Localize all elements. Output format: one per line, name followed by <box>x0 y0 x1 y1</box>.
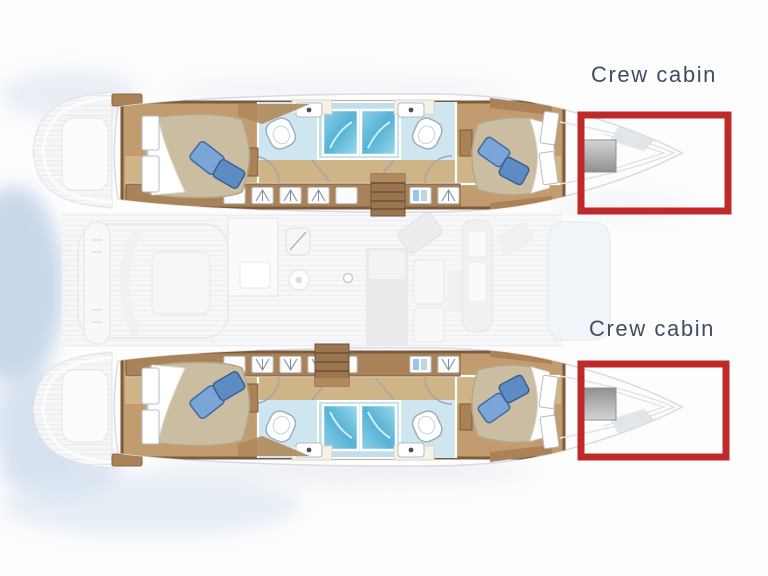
locker-door <box>336 188 357 204</box>
faucet-dot <box>307 108 312 113</box>
nightstand-2 <box>460 130 472 156</box>
galley-sink <box>240 262 270 288</box>
shadow-bow <box>550 195 690 219</box>
crew-cabin-label-bottom: Crew cabin <box>572 316 732 342</box>
hull-top <box>33 92 682 212</box>
shadow-left <box>0 186 64 386</box>
nav-unit-panel <box>468 231 486 257</box>
towel-glyph <box>421 190 427 201</box>
hull-window <box>142 156 159 192</box>
saloon-and-cockpit-deck <box>62 211 610 347</box>
towel-glyph <box>413 190 419 201</box>
transom-step <box>62 118 108 190</box>
yacht-layout-canvas: Crew cabin Crew cabin <box>0 0 768 576</box>
crew-cabin-label-top: Crew cabin <box>574 62 734 88</box>
faucet-dot-2 <box>409 108 414 113</box>
hull-window <box>142 116 159 150</box>
nav-unit-panel-2 <box>468 262 486 302</box>
galley-burner-center <box>296 277 302 283</box>
saloon-island-top <box>369 251 405 279</box>
companionway-stairs-bottom <box>315 344 349 386</box>
mast-step <box>344 274 353 283</box>
companionway-stairs-top <box>371 174 405 216</box>
saloon-sofa-2 <box>414 308 444 342</box>
bow-hatch <box>584 140 616 172</box>
cockpit-table <box>152 252 210 314</box>
stairs-landing <box>371 174 405 182</box>
saloon-table <box>447 270 463 312</box>
saloon-sofa <box>414 260 444 304</box>
stairs-landing <box>315 378 349 386</box>
